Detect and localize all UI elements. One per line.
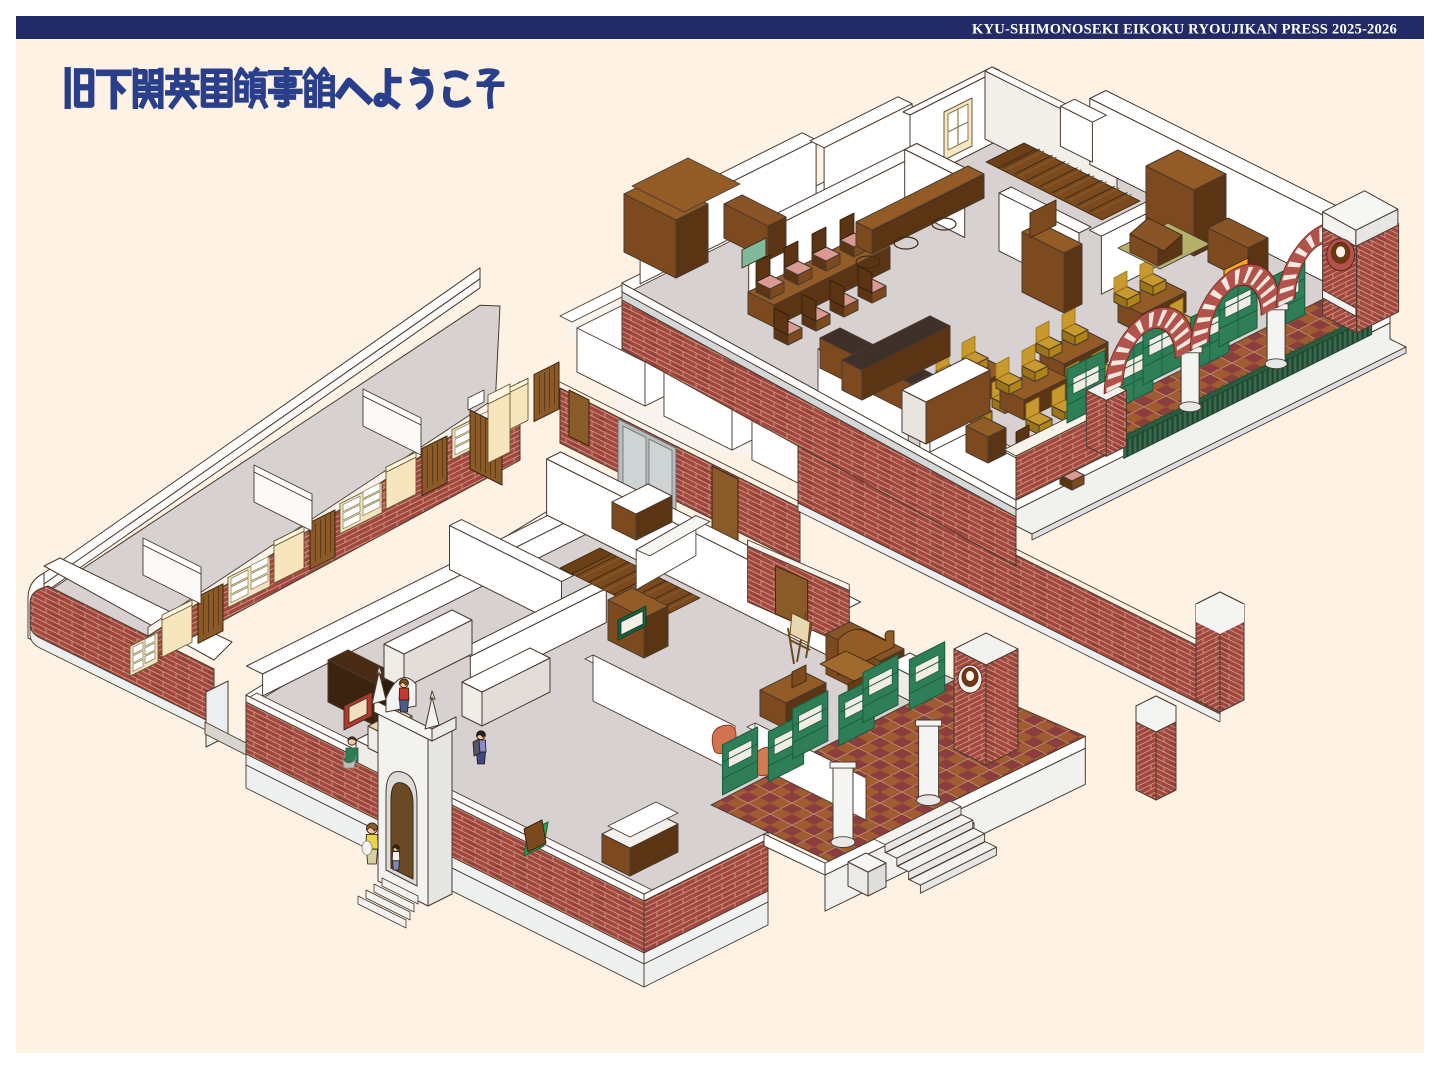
svg-text:KYU-SHIMONOSEKI EIKOKU RYOUJIK: KYU-SHIMONOSEKI EIKOKU RYOUJIKAN PRESS 2…: [972, 22, 1397, 38]
